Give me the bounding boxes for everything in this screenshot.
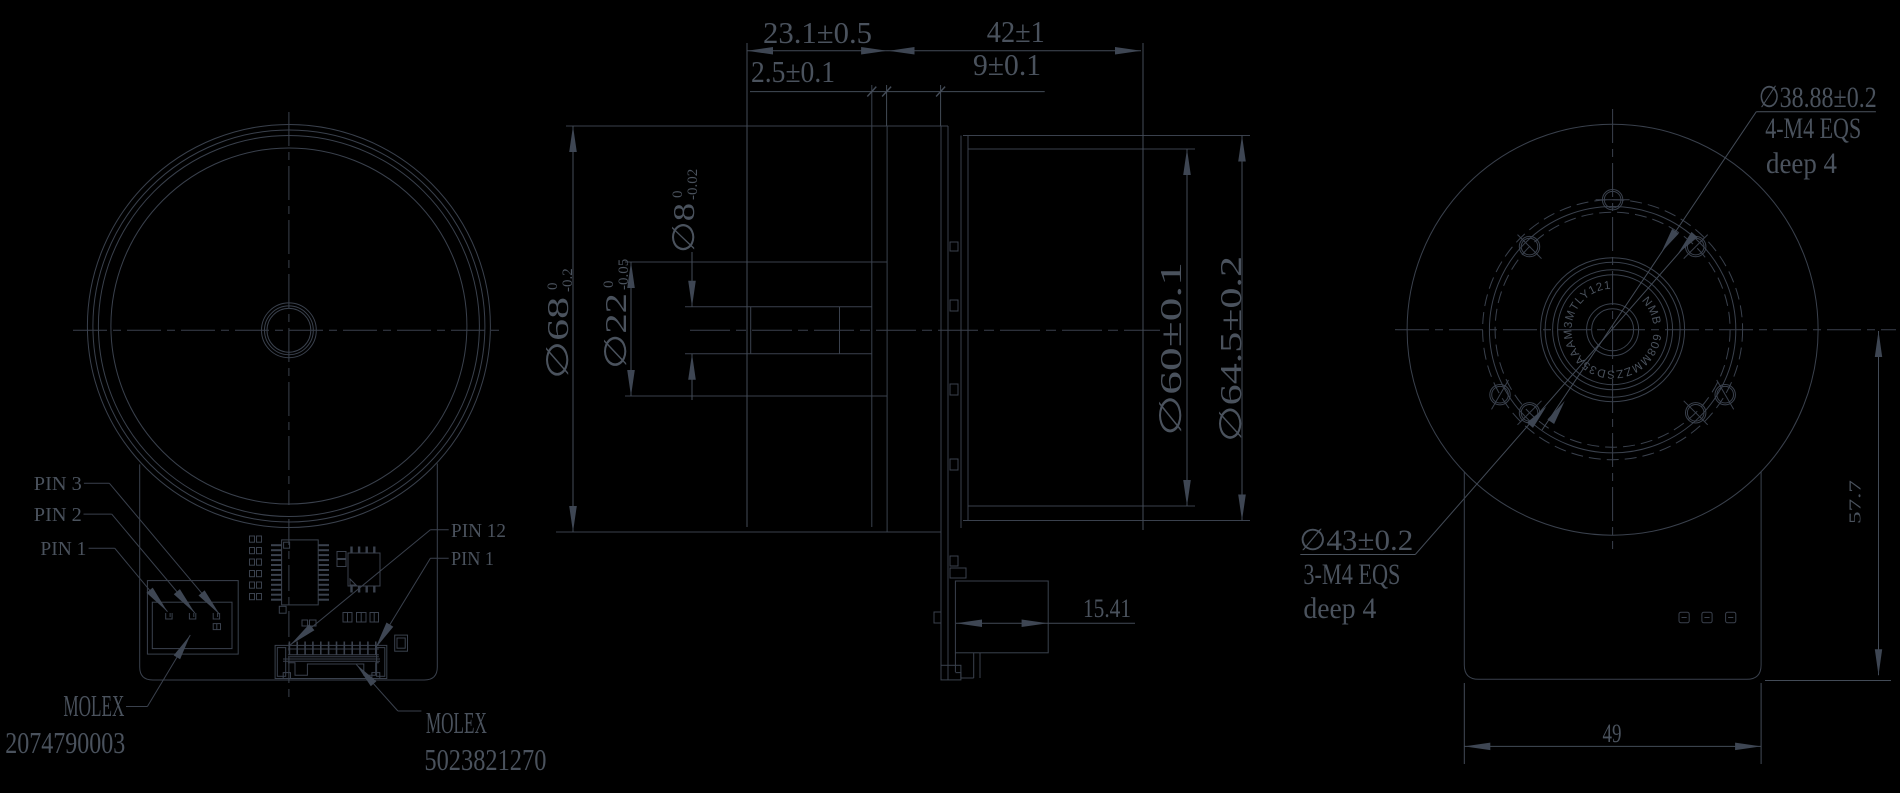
svg-text:MOLEX: MOLEX (63, 688, 124, 723)
svg-text:-0.05: -0.05 (616, 259, 632, 290)
svg-text:deep 4: deep 4 (1766, 147, 1837, 180)
svg-text:0: 0 (601, 281, 617, 289)
svg-text:2074790003: 2074790003 (5, 725, 125, 760)
svg-text:∅22: ∅22 (598, 293, 633, 369)
svg-text:42±1: 42±1 (987, 14, 1045, 49)
svg-text:PIN 12: PIN 12 (451, 520, 506, 542)
svg-text:-0.02: -0.02 (685, 169, 701, 200)
svg-text:2.5±0.1: 2.5±0.1 (751, 54, 835, 89)
svg-text:PIN 1: PIN 1 (40, 538, 86, 560)
svg-text:-0.2: -0.2 (560, 268, 576, 292)
svg-text:∅43±0.2: ∅43±0.2 (1299, 524, 1413, 557)
svg-text:0: 0 (545, 283, 561, 291)
svg-text:15.41: 15.41 (1083, 594, 1131, 623)
svg-text:4-M4 EQS: 4-M4 EQS (1765, 112, 1861, 145)
svg-text:deep 4: deep 4 (1303, 592, 1376, 625)
svg-text:∅38.88±0.2: ∅38.88±0.2 (1759, 81, 1877, 114)
svg-text:PIN 1: PIN 1 (451, 548, 494, 570)
svg-text:5023821270: 5023821270 (424, 742, 546, 777)
svg-text:∅60±0.1: ∅60±0.1 (1153, 262, 1188, 436)
svg-text:∅8: ∅8 (666, 203, 701, 253)
svg-text:3-M4 EQS: 3-M4 EQS (1303, 558, 1400, 591)
svg-text:9±0.1: 9±0.1 (973, 47, 1041, 82)
svg-text:∅64.5±0.2: ∅64.5±0.2 (1213, 256, 1248, 442)
svg-text:49: 49 (1603, 719, 1622, 748)
svg-text:MOLEX: MOLEX (426, 705, 487, 740)
svg-text:PIN 2: PIN 2 (34, 504, 82, 526)
svg-text:0: 0 (670, 191, 686, 199)
svg-text:57.7: 57.7 (1846, 479, 1865, 524)
svg-text:∅68: ∅68 (540, 297, 575, 379)
svg-text:PIN 3: PIN 3 (34, 473, 82, 495)
svg-text:23.1±0.5: 23.1±0.5 (763, 15, 872, 50)
